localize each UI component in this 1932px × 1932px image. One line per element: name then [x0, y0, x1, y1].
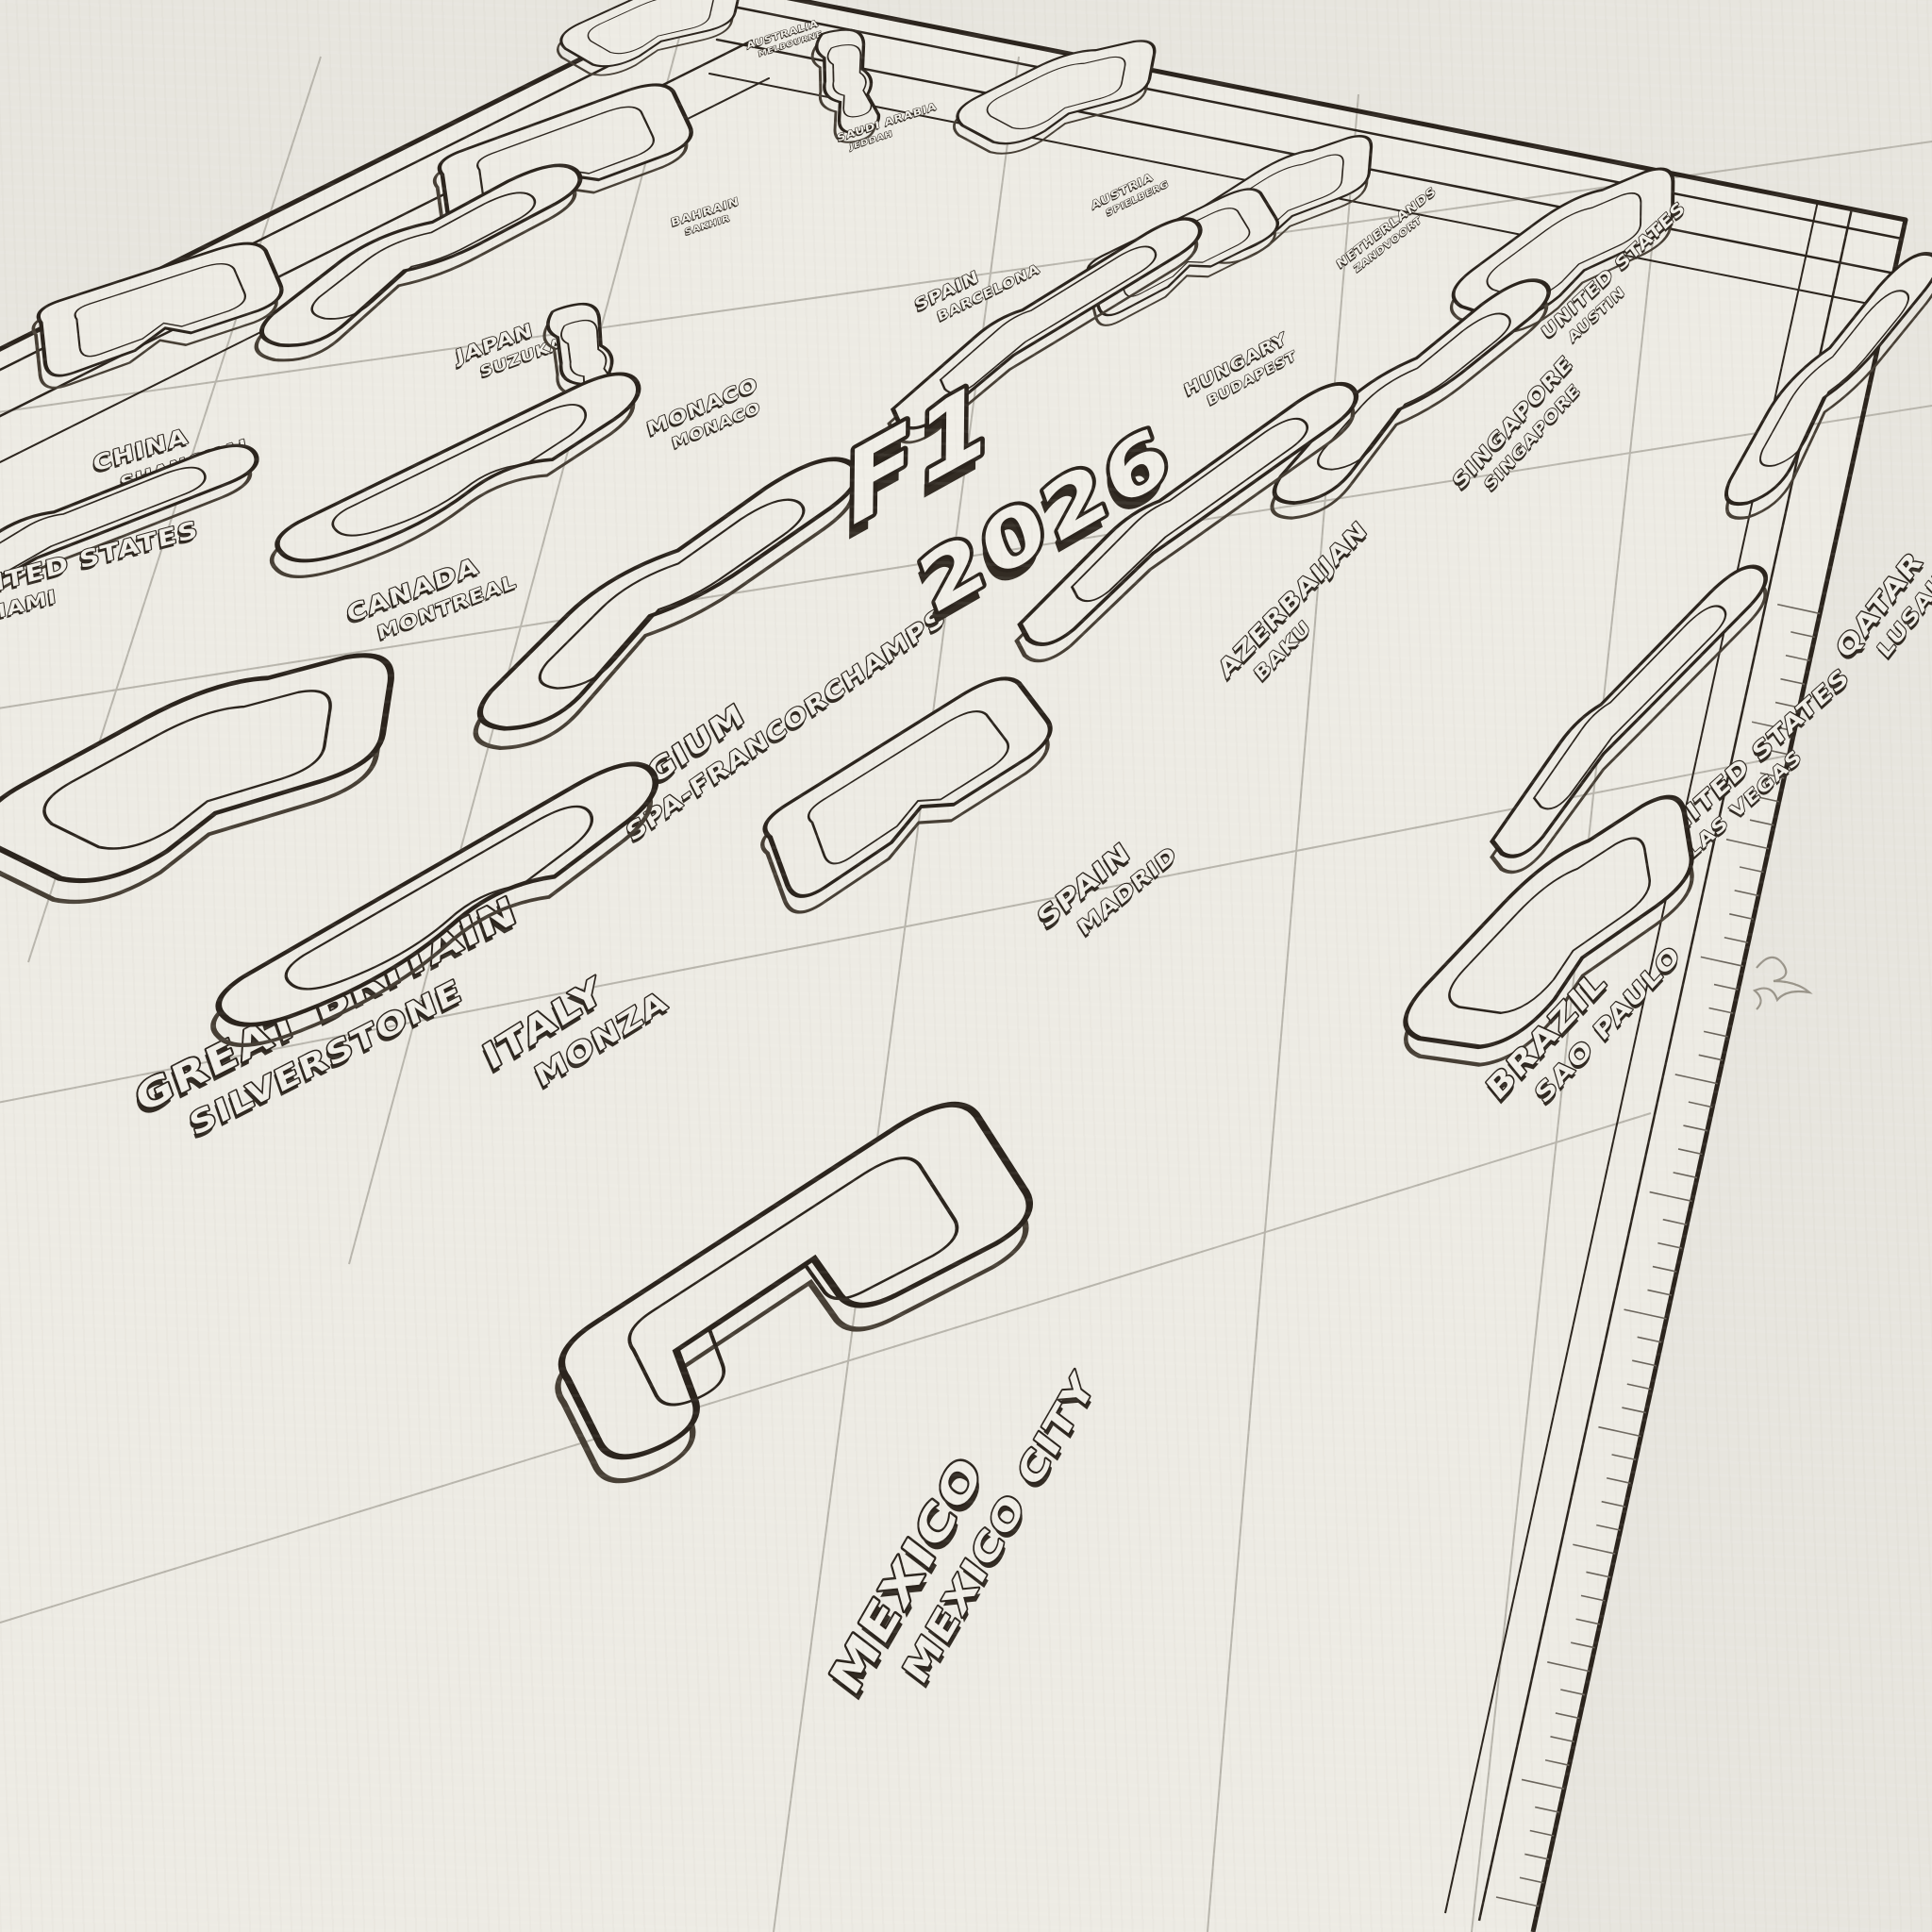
cad-render-viewport: AUSTRALIAAUSTRALIAMELBOURNEMELBOURNESAUD…: [0, 0, 1932, 1932]
f1-2026-board-scene: AUSTRALIAAUSTRALIAMELBOURNEMELBOURNESAUD…: [0, 0, 1932, 1932]
